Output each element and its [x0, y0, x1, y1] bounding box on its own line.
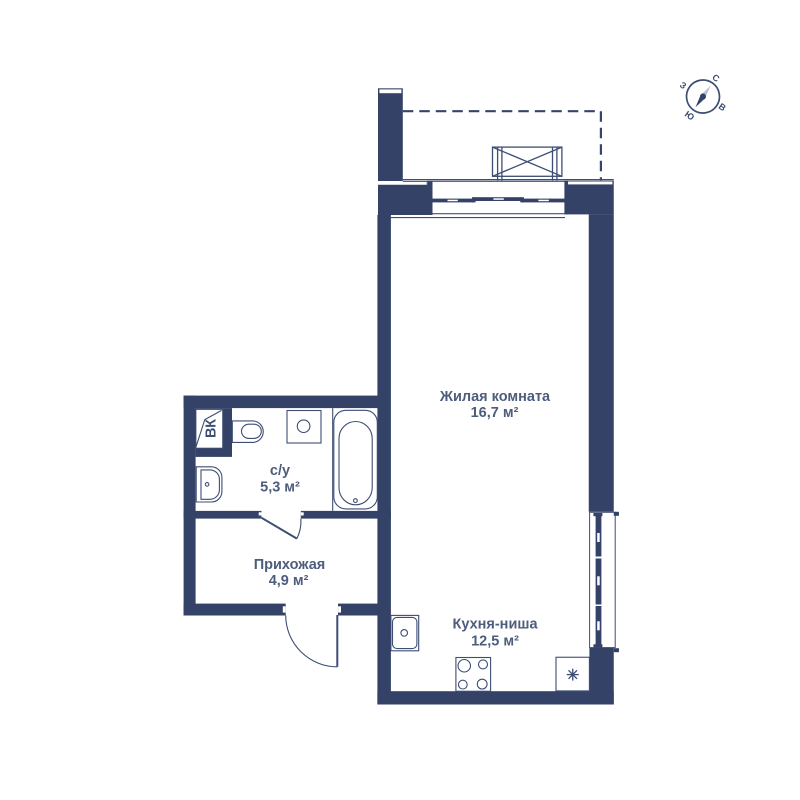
- svg-text:ВК: ВК: [204, 419, 220, 438]
- svg-text:12,5 м²: 12,5 м²: [471, 634, 519, 650]
- svg-text:Жилая комната: Жилая комната: [439, 389, 551, 405]
- svg-text:5,3 м²: 5,3 м²: [260, 480, 300, 496]
- svg-text:Прихожая: Прихожая: [254, 557, 326, 573]
- svg-text:с/у: с/у: [270, 463, 290, 479]
- svg-text:4,9 м²: 4,9 м²: [269, 573, 309, 589]
- svg-text:Кухня-ниша: Кухня-ниша: [452, 617, 538, 633]
- svg-text:16,7 м²: 16,7 м²: [471, 405, 519, 421]
